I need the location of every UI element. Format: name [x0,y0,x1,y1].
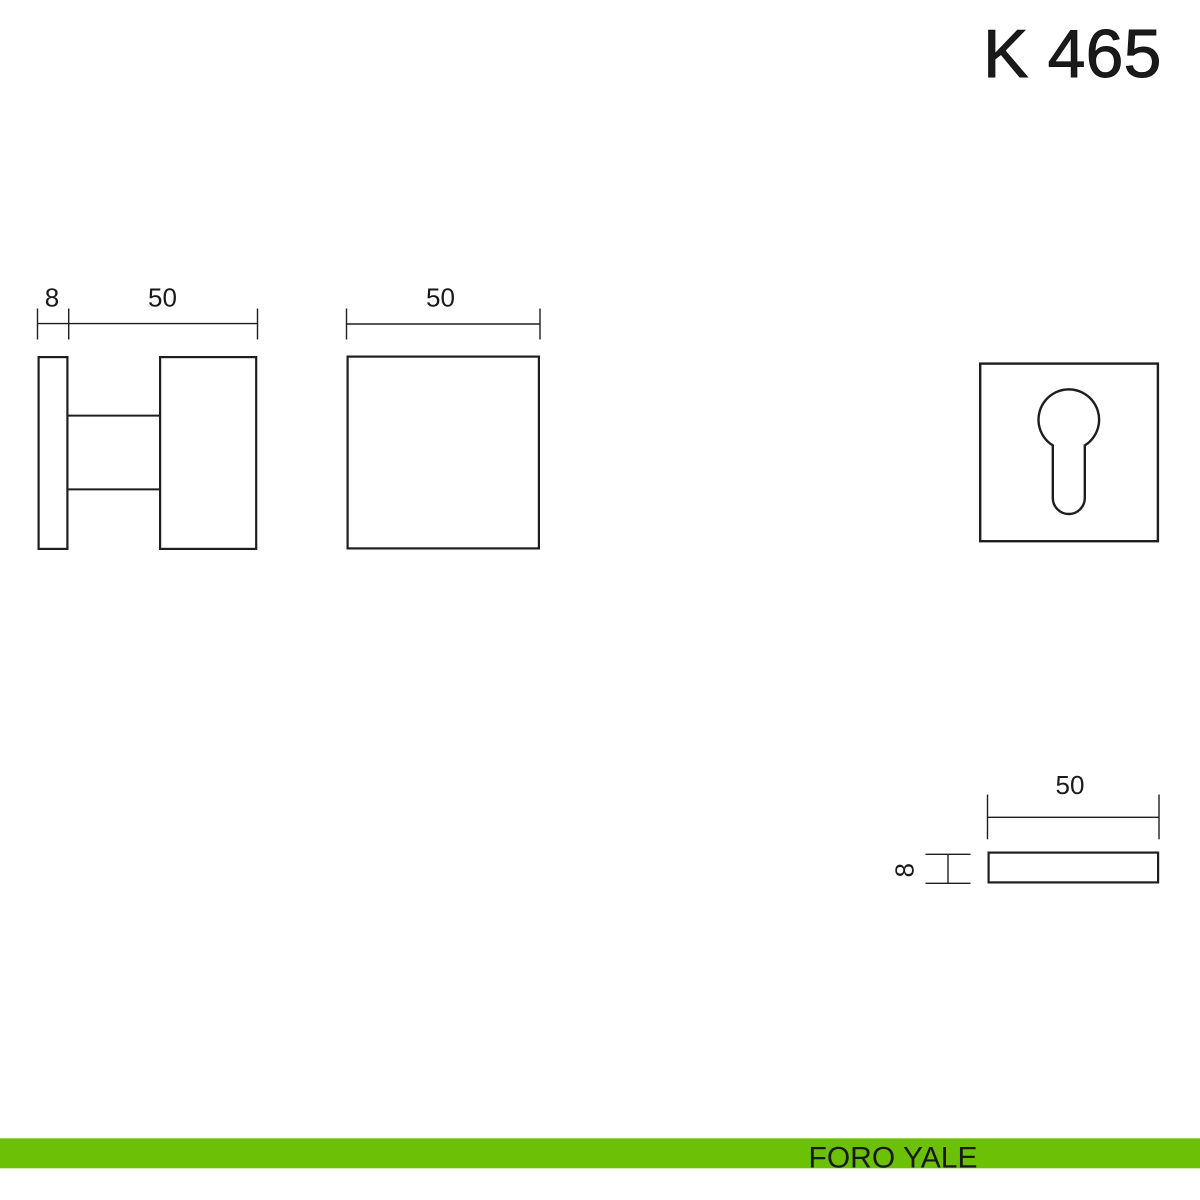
svg-text:50: 50 [148,283,177,313]
svg-text:8: 8 [890,863,920,877]
svg-text:8: 8 [45,283,59,313]
svg-text:K 465: K 465 [983,16,1162,92]
svg-text:FORO YALE: FORO YALE [809,1142,978,1175]
svg-text:50: 50 [426,283,455,313]
svg-text:50: 50 [1056,770,1085,800]
